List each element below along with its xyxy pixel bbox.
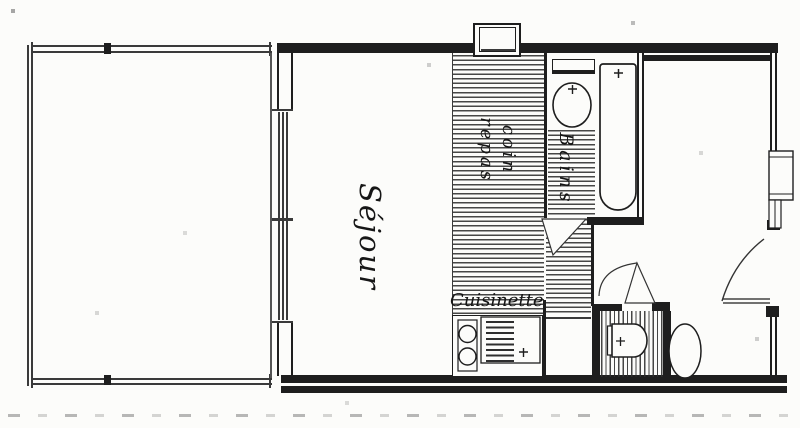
kitchen-tap-icon xyxy=(519,348,528,357)
cuisinette-room-label-text: Cuisinette xyxy=(450,290,543,311)
bains-room-label: Bains xyxy=(554,124,578,214)
sejour-room-label-text: Séjour xyxy=(353,183,387,291)
scan-noise-specks xyxy=(0,0,2,2)
floor-plan-canvas: Séjour coin repas Bains Cuisinette xyxy=(0,0,800,428)
coin-repas-room-label-text: coin repas xyxy=(475,117,519,183)
bains-room-label-text: Bains xyxy=(555,132,577,205)
kitchen-sink-frame xyxy=(481,317,540,363)
sejour-room-label: Séjour xyxy=(350,172,390,302)
entry-door-hinge-block xyxy=(766,306,779,317)
cuisinette-room-label: Cuisinette xyxy=(450,288,542,312)
entry-door-arc xyxy=(722,239,764,301)
cooktop-burner-top xyxy=(459,326,476,343)
bathtub xyxy=(600,64,636,210)
coin-repas-room-label: coin repas xyxy=(475,100,519,200)
entry-door-leaf xyxy=(723,299,770,303)
right-wall-window xyxy=(769,151,793,200)
bains-door-swing xyxy=(542,219,586,255)
scan-artifact-dashes xyxy=(8,414,792,417)
wc-door-swing xyxy=(625,263,655,303)
hall-oval-fixture xyxy=(669,324,701,378)
cooktop-burner-bottom xyxy=(459,348,476,365)
fixtures-layer xyxy=(0,0,800,428)
